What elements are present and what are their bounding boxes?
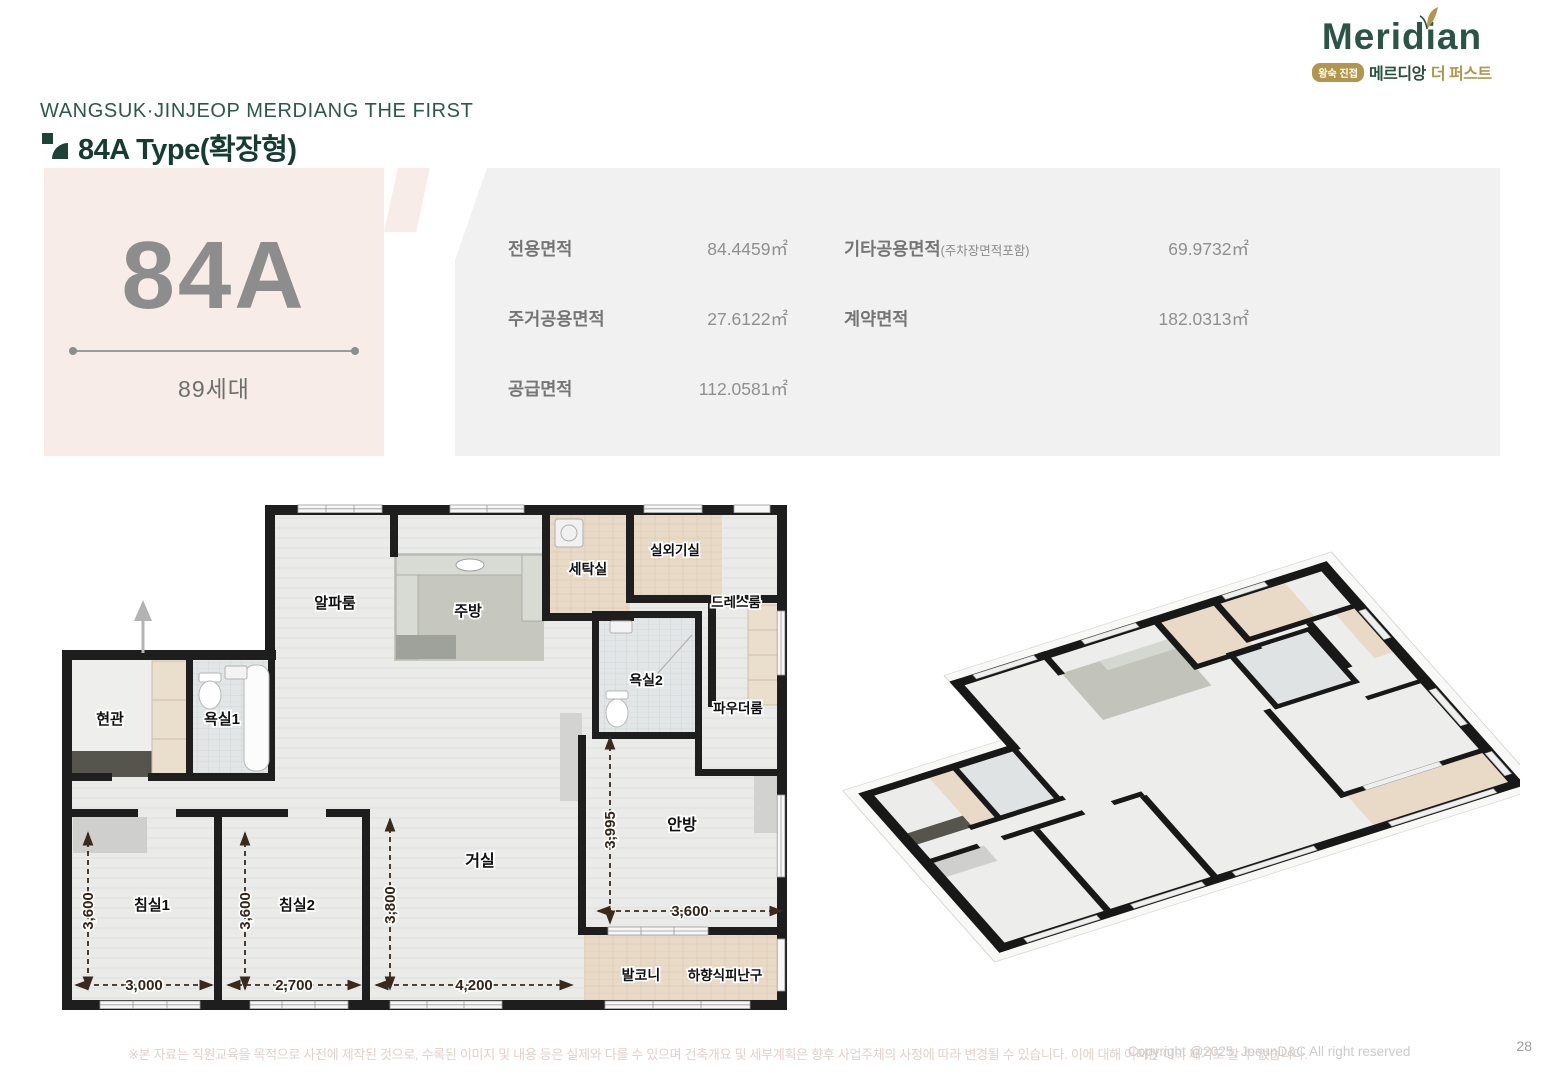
bed1-closet (73, 817, 147, 853)
dim-master-width: 3,600 (671, 903, 709, 920)
leaf-icon (1414, 6, 1440, 30)
brand-logo: Meridian 왕숙 진접 메르디앙 더 퍼스트 (1302, 18, 1502, 84)
unit-type-code: 84A (121, 228, 306, 324)
room-label-laundry: 세탁실 (569, 561, 608, 577)
room-label-dress: 드레스룸 (711, 595, 761, 610)
brand-name-korean: 메르디앙 (1369, 60, 1426, 84)
area-label-note: (주차장면적포함) (941, 244, 1030, 258)
dim-living-height: 3,800 (382, 886, 399, 924)
room-label-balcony: 발코니 (622, 967, 661, 983)
area-row: 주거공용면적 27.6122㎡ 계약면적 182.0313㎡ (508, 306, 1249, 331)
page-title: 84A Type(확장형) (78, 126, 297, 168)
unit-type-box-ribbon (384, 168, 430, 232)
room-label-escape-hatch: 하향식피난구 (688, 967, 763, 983)
master-cabinet (754, 775, 778, 833)
floorplan-2d: 3,600 3,600 3,800 3,995 3,000 2,700 4,20… (60, 503, 790, 1015)
dim-bed1-width: 3,000 (125, 977, 163, 994)
divider (73, 350, 355, 352)
type-marker-quarter (52, 143, 68, 159)
room-label-bed2: 침실2 (279, 897, 315, 914)
area-label: 기타공용면적(주차장면적포함) (844, 236, 1099, 261)
area-value: 182.0313㎡ (1099, 306, 1249, 331)
dim-master-height: 3,995 (602, 811, 619, 849)
room-label-powder: 파우더룸 (713, 701, 763, 716)
room-label-outdoor-unit: 실외기실 (650, 542, 700, 558)
brand-suffix-korean: 더 퍼스트 (1431, 60, 1492, 84)
area-value: 84.4459㎡ (658, 236, 788, 261)
room-label-kitchen: 주방 (454, 602, 482, 620)
unit-type-box: 84A 89세대 (44, 168, 384, 456)
project-title: WANGSUK·JINJEOP MERDIANG THE FIRST (40, 100, 473, 123)
brand-name: Meridian (1322, 16, 1482, 57)
area-info-panel: 전용면적 84.4459㎡ 기타공용면적(주차장면적포함) 69.9732㎡ 주… (455, 168, 1500, 456)
area-row: 전용면적 84.4459㎡ 기타공용면적(주차장면적포함) 69.9732㎡ (508, 236, 1249, 261)
area-row: 공급면적 112.0581㎡ (508, 376, 788, 401)
laundry-washer (555, 519, 583, 547)
brand-subline: 왕숙 진접 메르디앙 더 퍼스트 (1302, 60, 1502, 84)
area-label: 전용면적 (508, 236, 658, 261)
area-value: 112.0581㎡ (658, 376, 788, 401)
brand-badge: 왕숙 진접 (1312, 63, 1364, 82)
area-label: 공급면적 (508, 376, 658, 401)
dim-bed2-height: 3,600 (237, 892, 254, 930)
room-label-bath1: 욕실1 (204, 711, 240, 728)
room-label-living: 거실 (465, 852, 494, 870)
copyright-text: Copyright @2025, JoeunD&C All right rese… (1128, 1044, 1410, 1059)
room-label-alpha: 알파룸 (314, 595, 356, 612)
floorplan-3d (805, 495, 1520, 1030)
room-label-master: 안방 (667, 816, 697, 834)
page-number: 28 (1516, 1038, 1532, 1054)
type-marker-square (42, 133, 53, 144)
area-value: 69.9732㎡ (1099, 236, 1249, 261)
room-label-entrance: 현관 (96, 711, 124, 728)
brand-wordmark: Meridian (1302, 18, 1502, 55)
area-value: 27.6122㎡ (658, 306, 788, 331)
household-count: 89세대 (178, 370, 250, 404)
room-label-bath2: 욕실2 (629, 672, 663, 688)
room-label-bed1: 침실1 (134, 897, 170, 914)
area-label: 주거공용면적 (508, 306, 658, 331)
area-label: 계약면적 (844, 306, 1099, 331)
dim-bed1-height: 3,600 (80, 892, 97, 930)
type-marker-icon (42, 133, 68, 159)
dim-living-width: 4,200 (455, 977, 493, 994)
dim-bed2-width: 2,700 (275, 977, 313, 994)
entry-closet (152, 661, 188, 777)
